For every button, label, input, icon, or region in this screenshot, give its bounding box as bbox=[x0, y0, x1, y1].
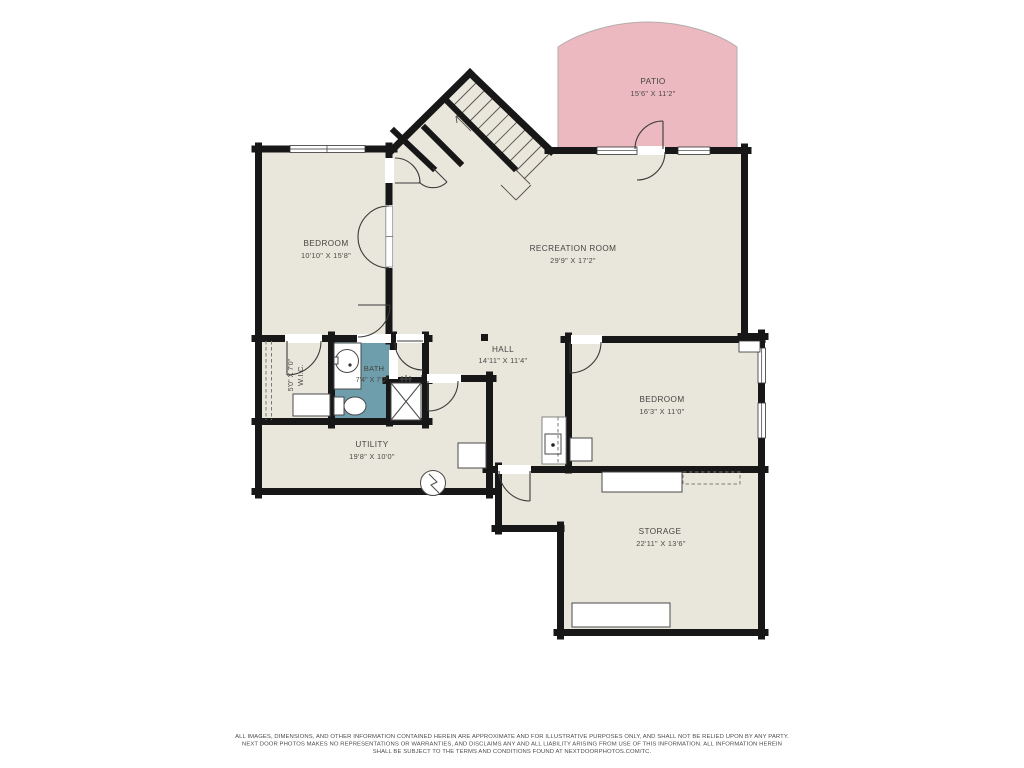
bedroom2-window-lower bbox=[758, 403, 766, 438]
utility-dims: 19'8" X 10'0" bbox=[349, 452, 395, 461]
water-heater-icon bbox=[421, 471, 446, 496]
support-column bbox=[481, 334, 488, 341]
utility-label: UTILITY bbox=[355, 440, 388, 449]
hall-label: HALL bbox=[492, 345, 514, 354]
patio-area bbox=[558, 22, 737, 150]
bedroom2-label: BEDROOM bbox=[639, 395, 684, 404]
wic-shelf bbox=[293, 394, 330, 416]
patio-label: PATIO bbox=[640, 77, 665, 86]
recreation-window-right bbox=[678, 147, 710, 155]
storage-workbench bbox=[602, 472, 682, 492]
disclaimer: ALL IMAGES, DIMENSIONS, AND OTHER INFORM… bbox=[235, 734, 789, 755]
recreation-window-left bbox=[597, 147, 637, 155]
bath-label: BATH bbox=[364, 364, 385, 373]
wic-label: W.I.C. bbox=[296, 364, 305, 386]
patio-dims: 15'6" X 11'2" bbox=[630, 89, 675, 98]
bedroom1-label: BEDROOM bbox=[303, 239, 348, 248]
storage-dims: 22'11" X 13'6" bbox=[636, 539, 686, 548]
disclaimer-line-2: NEXT DOOR PHOTOS MAKES NO REPRESENTATION… bbox=[242, 742, 782, 748]
recreation-label: RECREATION ROOM bbox=[530, 244, 617, 253]
bath-dims: 7'4" X 7'0" bbox=[356, 377, 389, 384]
floor-plan-page: PATIO 15'6" X 11'2" BEDROOM 10'10" X 15'… bbox=[0, 0, 1024, 768]
furnace-icon bbox=[542, 417, 566, 464]
hall-dims: 14'11" X 11'4" bbox=[479, 356, 528, 365]
floor-plan-canvas: PATIO 15'6" X 11'2" BEDROOM 10'10" X 15'… bbox=[0, 0, 1024, 768]
disclaimer-line-3: SHALL BE SUBJECT TO THE TERMS AND CONDIT… bbox=[373, 749, 652, 755]
bedroom1-dims: 10'10" X 15'8" bbox=[301, 251, 351, 260]
toilet-icon bbox=[334, 397, 366, 415]
bedroom2-window-upper bbox=[758, 348, 766, 383]
recreation-dims: 29'9" X 17'2" bbox=[550, 256, 596, 265]
bedroom1-window bbox=[290, 146, 365, 153]
utility-box bbox=[458, 443, 486, 468]
wic-dims: 5'0" X 7'0" bbox=[288, 358, 295, 391]
storage-label: STORAGE bbox=[639, 527, 682, 536]
storage-counter bbox=[572, 603, 670, 627]
bedroom2-box bbox=[570, 438, 592, 461]
wall-notch bbox=[739, 341, 760, 352]
bedroom2-dims: 16'3" X 11'0" bbox=[639, 407, 684, 416]
disclaimer-line-1: ALL IMAGES, DIMENSIONS, AND OTHER INFORM… bbox=[235, 734, 789, 740]
